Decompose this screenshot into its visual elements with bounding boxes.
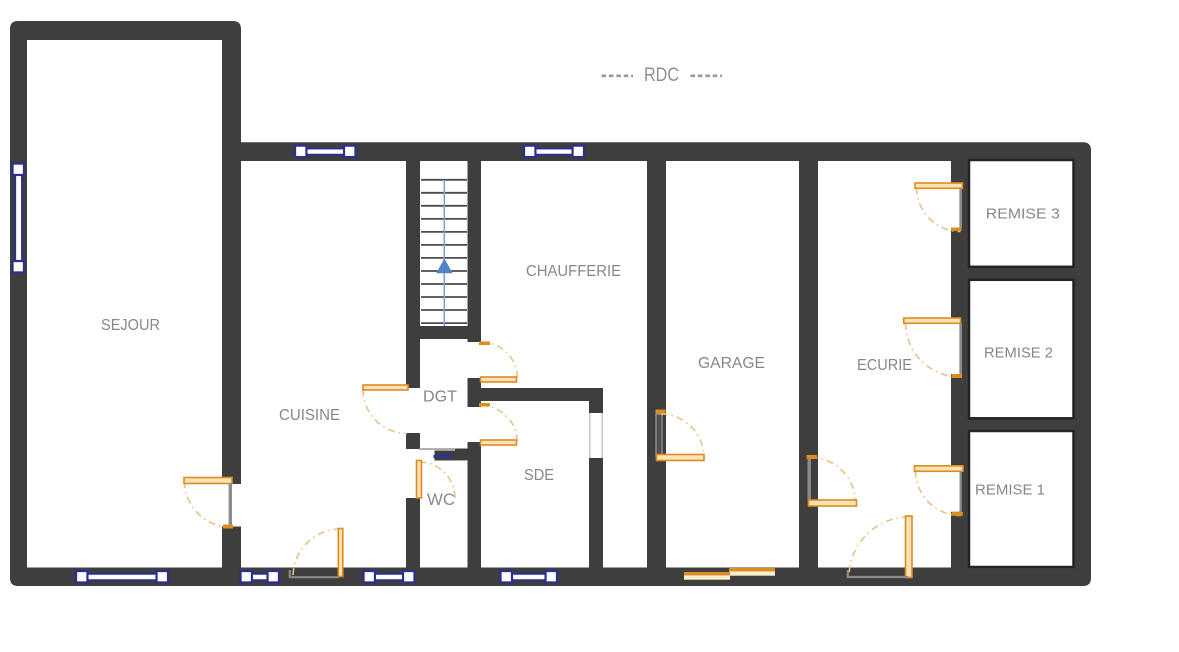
svg-text:RDC: RDC bbox=[644, 65, 679, 86]
svg-text:SEJOUR: SEJOUR bbox=[101, 317, 160, 334]
svg-text:SDE: SDE bbox=[524, 467, 554, 484]
svg-text:REMISE 1: REMISE 1 bbox=[975, 482, 1045, 499]
svg-text:CUISINE: CUISINE bbox=[279, 407, 340, 424]
svg-text:WC: WC bbox=[427, 491, 455, 509]
svg-text:DGT: DGT bbox=[423, 389, 457, 406]
svg-text:REMISE 2: REMISE 2 bbox=[984, 345, 1053, 362]
svg-text:GARAGE: GARAGE bbox=[698, 355, 765, 372]
svg-text:CHAUFFERIE: CHAUFFERIE bbox=[526, 263, 621, 280]
svg-text:ECURIE: ECURIE bbox=[857, 357, 912, 374]
svg-text:REMISE 3: REMISE 3 bbox=[986, 206, 1060, 223]
